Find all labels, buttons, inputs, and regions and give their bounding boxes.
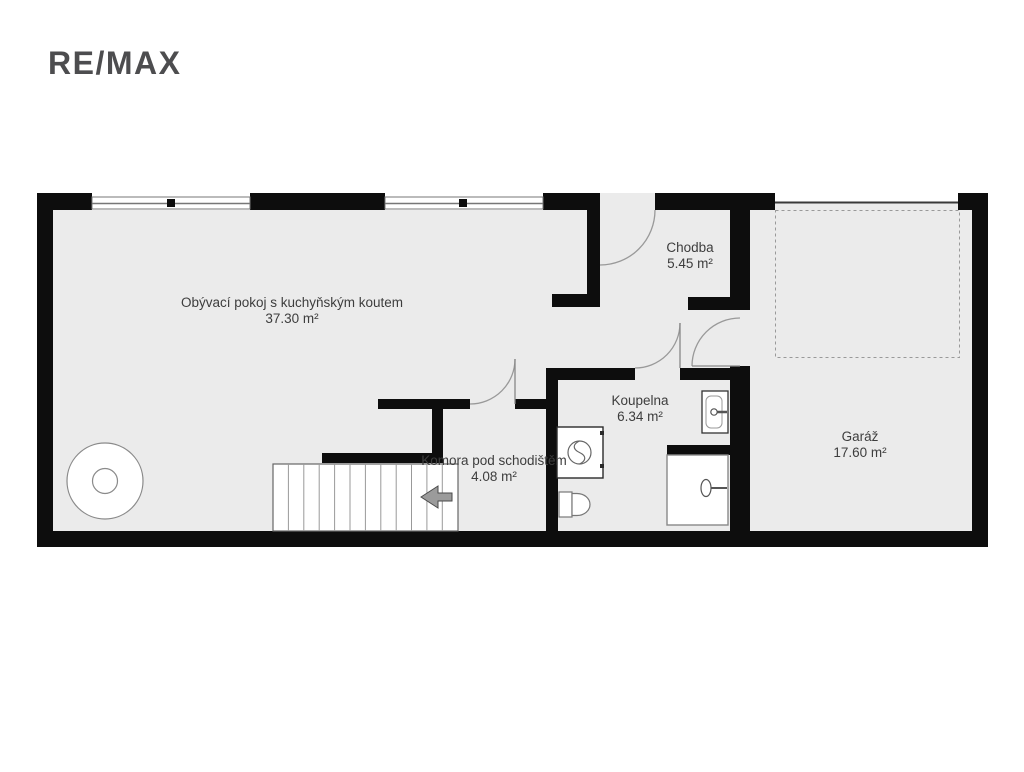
toilet xyxy=(559,492,590,517)
room-area: 5.45 m² xyxy=(666,256,713,272)
room-name: Garáž xyxy=(833,429,886,445)
bath-left-wall xyxy=(546,368,558,531)
hall-living-wall-foot xyxy=(552,294,600,307)
room-name: Komora pod schodištěm xyxy=(421,453,567,469)
room-label-garage: Garáž 17.60 m² xyxy=(833,429,886,461)
room-area: 37.30 m² xyxy=(181,311,403,327)
hall-garage-wall xyxy=(730,210,750,310)
room-name: Chodba xyxy=(666,240,713,256)
room-name: Obývací pokoj s kuchyňským koutem xyxy=(181,295,403,311)
room-area: 4.08 m² xyxy=(421,469,567,485)
shower-stub-wall xyxy=(667,445,730,455)
closet-top-wall-right xyxy=(515,399,558,409)
stove-circle xyxy=(67,443,143,519)
hall-bottom-stub xyxy=(688,297,750,310)
stair-side-wall xyxy=(322,453,432,463)
window-1 xyxy=(92,197,250,209)
washbasin xyxy=(702,391,728,433)
hall-living-wall xyxy=(587,208,600,300)
window-2 xyxy=(385,197,543,209)
room-area: 17.60 m² xyxy=(833,445,886,461)
room-label-hall: Chodba 5.45 m² xyxy=(666,240,713,272)
closet-top-wall-left xyxy=(378,399,470,409)
room-label-living-room: Obývací pokoj s kuchyňským koutem 37.30 … xyxy=(181,295,403,327)
room-area: 6.34 m² xyxy=(611,409,668,425)
room-label-closet: Komora pod schodištěm 4.08 m² xyxy=(421,453,567,485)
room-name: Koupelna xyxy=(611,393,668,409)
bath-top-wall-right xyxy=(680,368,730,380)
room-label-bathroom: Koupelna 6.34 m² xyxy=(611,393,668,425)
entrance-opening-floor xyxy=(600,193,655,210)
bath-top-wall-left xyxy=(546,368,635,380)
bath-garage-wall xyxy=(730,366,750,531)
floor-plan xyxy=(0,0,1024,772)
shower xyxy=(667,455,728,525)
